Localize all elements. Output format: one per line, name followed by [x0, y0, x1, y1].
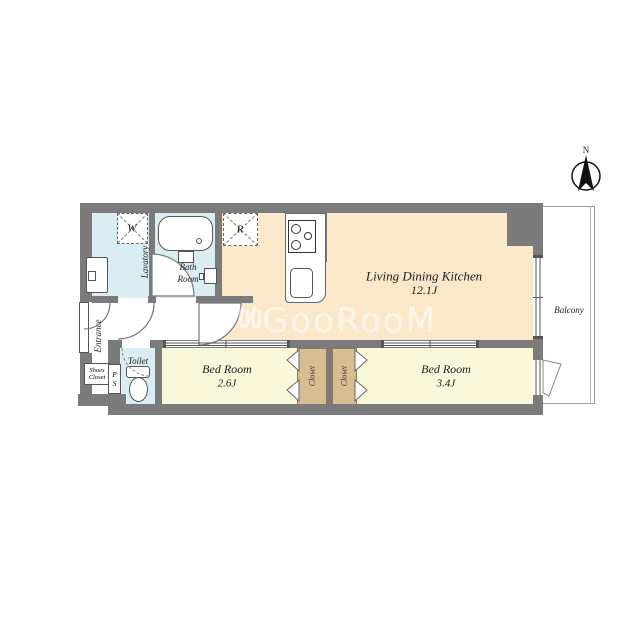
sliding-door-bedroom-large [383, 341, 477, 347]
wall-right-c [533, 395, 543, 405]
bath-faucet [204, 268, 217, 284]
balcony-label: Balcony [554, 305, 584, 315]
lavatory-label: Lavatory [140, 246, 150, 279]
shoes-closet-label-1: Shoes [89, 367, 104, 375]
floor-plan: Shoes Closet P S [0, 0, 640, 640]
bedroom-large-size-label: 3.4J [437, 378, 456, 391]
lavatory-sink-handle [88, 271, 96, 281]
compass-icon [572, 155, 600, 191]
wall-bottom [108, 404, 543, 415]
refrigerator-label: R [237, 224, 244, 237]
kitchen-sink [290, 268, 313, 298]
stove-burner-2 [304, 232, 312, 240]
bedroom-small-size-label: 2.6J [218, 378, 237, 391]
hallway-floor [92, 298, 215, 345]
balcony-inner-line [590, 206, 591, 404]
window-bedroom-large [533, 360, 543, 395]
wall-closet-divider [327, 348, 332, 405]
bedroom-small-name-label: Bed Room [202, 363, 252, 377]
bath-label-line1: Bath [180, 262, 197, 272]
window-ldk [533, 257, 543, 338]
washer-label: W [127, 223, 136, 236]
closet-right-label: Closet [339, 366, 348, 386]
stove-burner-1 [291, 224, 301, 234]
toilet-bowl [129, 377, 148, 402]
entrance-door-leaf [79, 302, 89, 353]
closet-left-label: Closet [307, 366, 316, 386]
shoes-closet-box: Shoes Closet [84, 363, 110, 385]
wall-hall-stub [196, 296, 253, 303]
stove-burner-3 [291, 240, 301, 250]
bath-faucet-knob [199, 273, 204, 280]
wall-bath-right [215, 213, 222, 298]
bathtub [158, 216, 213, 251]
wall-wet-bottom-a [92, 296, 118, 303]
pipe-space-label-p: P [112, 370, 117, 379]
wall-wet-bottom-b [148, 296, 156, 303]
bedroom-large-name-label: Bed Room [421, 363, 471, 377]
wall-right-a [533, 213, 543, 257]
pipe-space-label-s: S [113, 379, 117, 388]
compass-north-label: N [583, 145, 590, 155]
wall-top [80, 203, 543, 213]
wall-right-b [533, 338, 543, 360]
toilet-label: Toilet [128, 356, 148, 366]
watermark-text: GooRooM [262, 301, 437, 341]
shoes-closet-label-2: Closet [89, 374, 106, 382]
sliding-door-bedroom-small [165, 341, 288, 347]
ldk-size-label: 12.1J [411, 284, 437, 298]
pipe-space-box: P S [108, 364, 121, 394]
wall-toilet-right [155, 348, 162, 405]
bath-label-line2: Room [178, 274, 199, 284]
entrance-label: Entrance [93, 320, 103, 353]
bathtub-drain [196, 238, 202, 244]
wall-toilet-top-a [108, 340, 122, 348]
